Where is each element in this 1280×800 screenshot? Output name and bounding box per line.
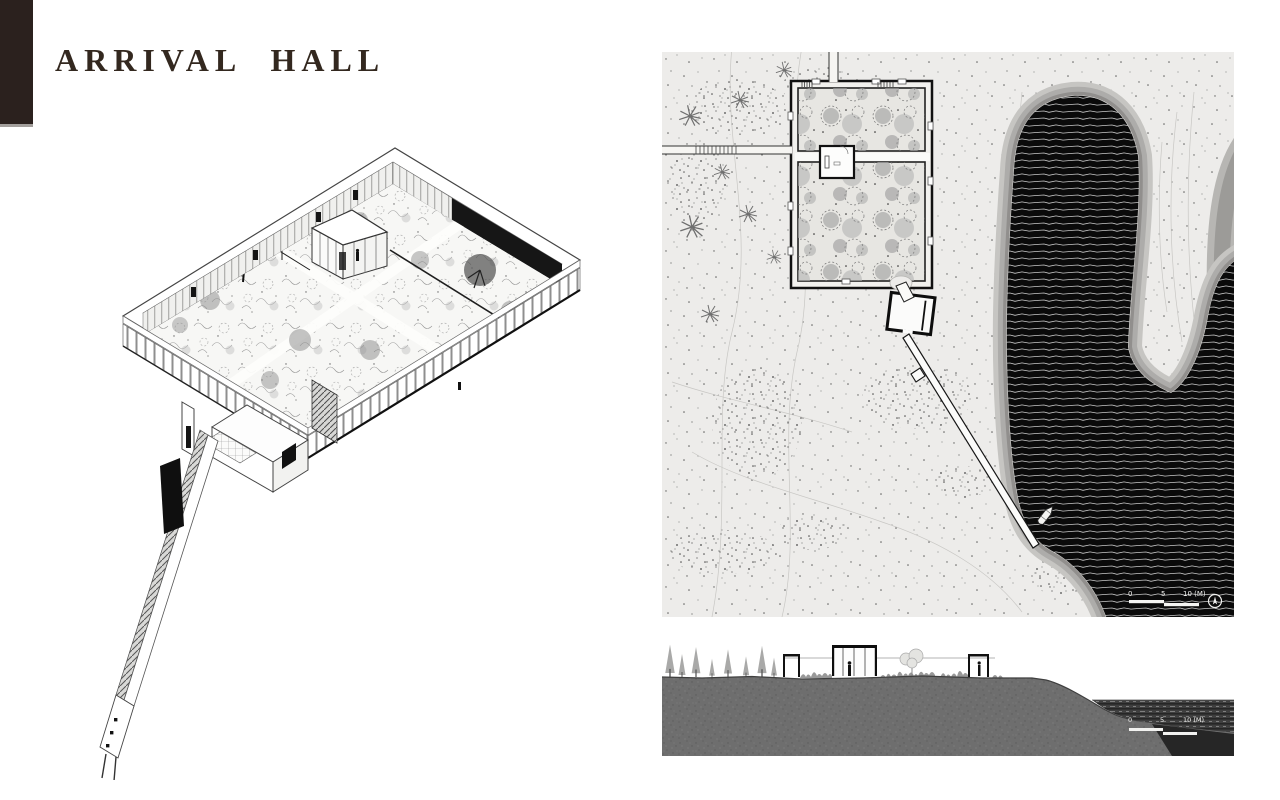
section-drawing: 0 5 10 (M) bbox=[662, 628, 1234, 758]
section-pavilion bbox=[832, 645, 877, 676]
section-scale-0: 0 bbox=[1128, 716, 1132, 724]
section-light-tree bbox=[900, 649, 923, 676]
figure bbox=[848, 665, 851, 676]
plan-scale-10: 10 (M) bbox=[1183, 590, 1206, 598]
plan-scale-0: 0 bbox=[1128, 590, 1132, 598]
page-title: ARRIVAL HALL bbox=[55, 42, 385, 79]
presentation-board: ARRIVAL HALL bbox=[0, 0, 1280, 800]
plan-pavilion bbox=[820, 146, 854, 178]
site-plan-svg: 0 5 10 (M) bbox=[662, 52, 1234, 617]
plan-scale-5: 5 bbox=[1161, 590, 1165, 598]
section-scale-5: 5 bbox=[1160, 716, 1164, 724]
figure bbox=[356, 252, 359, 261]
accent-bar bbox=[0, 0, 33, 127]
axonometric-drawing bbox=[60, 140, 600, 780]
figure bbox=[458, 382, 461, 390]
site-plan-drawing: 0 5 10 (M) bbox=[662, 52, 1234, 617]
section-svg: 0 5 10 (M) bbox=[662, 628, 1234, 758]
section-trees bbox=[665, 645, 777, 678]
axon-svg bbox=[60, 140, 600, 780]
axon-ramp bbox=[100, 430, 218, 780]
section-right-room bbox=[968, 654, 989, 677]
section-left-room bbox=[783, 654, 800, 677]
section-scale-10: 10 (M) bbox=[1183, 716, 1204, 724]
